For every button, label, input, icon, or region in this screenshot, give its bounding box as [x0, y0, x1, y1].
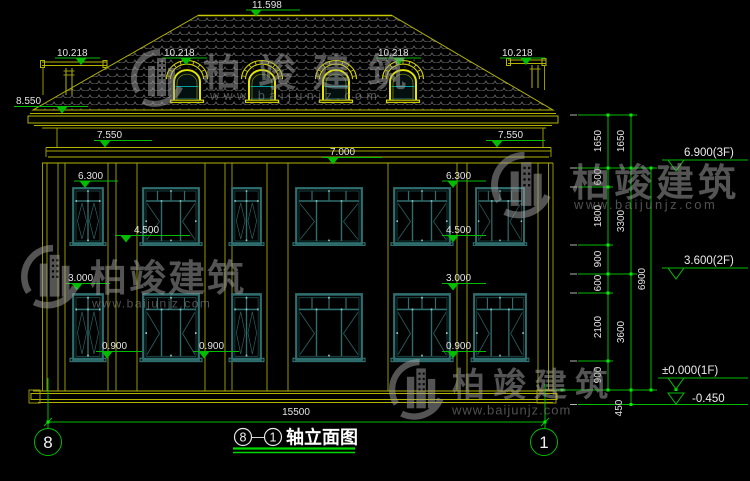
window-2f-3: [229, 188, 264, 245]
chain-label: 3600: [616, 320, 627, 343]
level-1f: ±0.000(1F): [658, 365, 748, 389]
watermark-logo-icon: [24, 248, 75, 305]
dim-label: 4.500: [134, 225, 159, 236]
watermark-url: www.baijunjz.com: [573, 197, 717, 212]
window-2f-1: [70, 188, 106, 245]
chain-label: 1650: [593, 129, 604, 152]
drawing-title: 8 — 1 轴立面图: [233, 427, 358, 453]
dim-label: 10.218: [164, 48, 195, 59]
dim-win2top-left: 6.300: [74, 171, 118, 188]
dim-wall-top: 7.000: [322, 147, 382, 165]
level-label: 3.600(2F): [684, 255, 734, 267]
chain-tick-dots: [561, 114, 678, 407]
window-2f-5: [391, 188, 453, 245]
chain-label: 1650: [616, 129, 627, 152]
level-below-grade: -0.450: [656, 393, 748, 405]
dim-label: 6.300: [446, 171, 471, 182]
axis-bubble-1-label: 1: [539, 433, 548, 452]
watermark-logo-icon: [392, 362, 440, 416]
chain-tick-rows: [554, 115, 657, 405]
watermark-bottom: 柏竣建筑 www.baijunjz.com: [392, 362, 616, 417]
dim-label: 6.300: [78, 171, 103, 182]
total-width-label: 15500: [282, 407, 310, 418]
watermark-url: www.baijunjz.com: [209, 89, 381, 103]
title-text: 轴立面图: [286, 427, 358, 448]
dim-label: 7.000: [330, 147, 355, 158]
level-label: 6.900(3F): [684, 147, 734, 159]
watermark-right: 柏竣建筑 www.baijunjz.com: [494, 155, 740, 215]
dim-label: 8.550: [16, 96, 41, 107]
window-1f-4: [293, 294, 365, 361]
dim-label: 10.218: [502, 48, 533, 59]
elevation-drawing: 11.598 10.218 10.218 10.218 10.218 8.550…: [0, 0, 750, 481]
dim-win1top-right: 3.000: [442, 273, 486, 291]
chain-label: 600: [593, 274, 604, 291]
dim-label: 0.900: [102, 341, 127, 352]
eave-fascia: [28, 116, 558, 123]
windows-upper-floor: [70, 188, 527, 245]
level-label: -0.450: [692, 393, 725, 405]
watermark-left: 柏竣建筑 www.baijunjz.com: [24, 248, 246, 310]
dim-label: 0.900: [199, 341, 224, 352]
axis-bubble-8-label: 8: [43, 433, 52, 452]
watermark-brand: 柏竣建筑: [90, 257, 246, 299]
chain-label: 6900: [637, 267, 648, 290]
dim-win1sill-right: 0.900: [442, 341, 486, 359]
level-label: ±0.000(1F): [662, 365, 718, 377]
dim-win2top-right: 6.300: [442, 171, 486, 188]
watermark-brand: 柏竣建筑: [452, 366, 616, 403]
dim-ridge: 11.598: [246, 0, 300, 17]
dim-label: 0.900: [446, 341, 471, 352]
dim-label: 3.000: [446, 273, 471, 284]
watermark-url: www.baijunjz.com: [91, 297, 211, 311]
window-2f-2: [140, 188, 202, 245]
chain-label: 2100: [593, 315, 604, 338]
title-bubble-8-label: 8: [240, 431, 247, 445]
dim-label: 4.500: [446, 225, 471, 236]
level-2f: 3.600(2F): [662, 255, 748, 279]
chain-label: 3300: [616, 209, 627, 232]
dim-cornice-right: 7.550: [486, 130, 545, 148]
watermark-logo-icon: [494, 155, 547, 215]
dim-win2sill-right: 4.500: [442, 225, 486, 243]
dim-cornice-left: 7.550: [94, 130, 152, 148]
title-dash: —: [252, 430, 265, 444]
dim-label: 7.550: [97, 130, 122, 141]
dim-win2sill-left: 4.500: [115, 225, 190, 243]
cad-elevation-canvas: 11.598 10.218 10.218 10.218 10.218 8.550…: [0, 0, 750, 481]
watermark-url: www.baijunjz.com: [451, 403, 571, 418]
title-bubble-1-label: 1: [270, 431, 277, 445]
chain-label: 900: [593, 250, 604, 267]
dim-label: 10.218: [57, 48, 88, 59]
extension-line-ends: [570, 115, 577, 405]
dim-label: 11.598: [252, 0, 282, 11]
window-2f-4: [293, 188, 365, 245]
dim-label: 7.550: [498, 130, 523, 141]
